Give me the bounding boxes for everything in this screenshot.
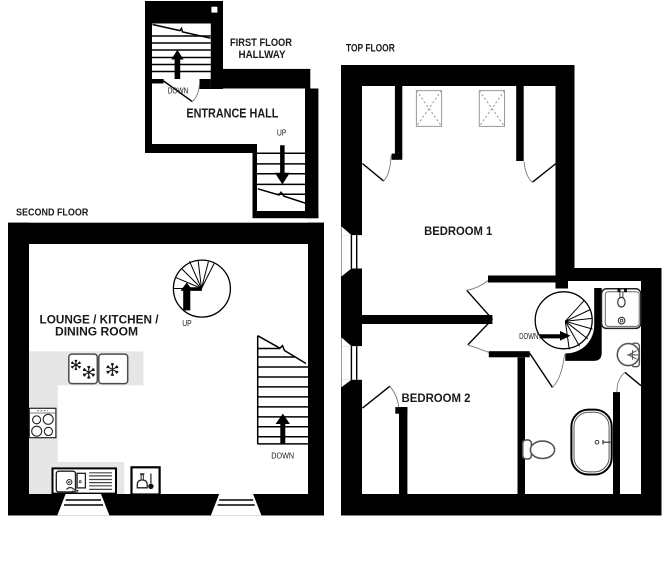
svg-text:BEDROOM 1: BEDROOM 1	[424, 224, 492, 238]
svg-text:ENTRANCE HALL: ENTRANCE HALL	[186, 105, 278, 120]
svg-text:TOP FLOOR: TOP FLOOR	[346, 42, 395, 54]
svg-text:SECOND FLOOR: SECOND FLOOR	[16, 207, 89, 219]
svg-text:FIRST FLOOR: FIRST FLOOR	[230, 37, 292, 49]
svg-text:DINING ROOM: DINING ROOM	[55, 324, 138, 338]
svg-text:HALLWAY: HALLWAY	[239, 49, 287, 61]
svg-text:UP: UP	[182, 319, 192, 328]
svg-text:DOWN: DOWN	[168, 87, 189, 96]
svg-text:BEDROOM 2: BEDROOM 2	[402, 391, 471, 405]
svg-text:DOWN: DOWN	[271, 452, 294, 461]
svg-text:DOWN: DOWN	[519, 332, 538, 341]
svg-text:UP: UP	[277, 129, 287, 138]
